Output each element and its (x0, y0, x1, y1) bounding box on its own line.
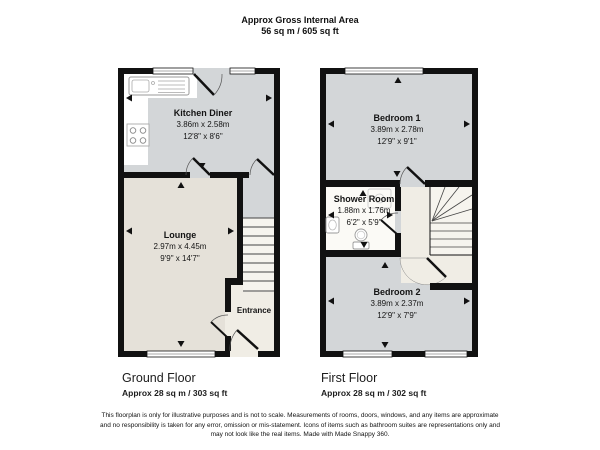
disclaimer-line-2: and no responsibility is taken for any e… (20, 421, 580, 431)
room-dim-metric: 2.97m x 4.45m (121, 241, 239, 253)
room-dim-metric: 3.89m x 2.78m (338, 124, 456, 136)
kitchen-window-right (230, 68, 255, 74)
page-header: Approx Gross Internal Area 56 sq m / 605… (0, 15, 600, 37)
room-dim-metric: 3.89m x 2.37m (338, 298, 456, 310)
room-name: Kitchen Diner (144, 107, 262, 119)
disclaimer-line-1: This floorplan is only for illustrative … (20, 411, 580, 421)
room-label-bedroom-1: Bedroom 1 3.89m x 2.78m 12'9" x 9'1" (338, 112, 456, 148)
room-dim-metric: 3.86m x 2.58m (144, 119, 262, 131)
room-label-entrance: Entrance (214, 306, 294, 315)
room-name: Bedroom 1 (338, 112, 456, 124)
room-dim-imperial: 6'2" x 5'9" (322, 217, 406, 229)
room-name: Shower Room (322, 193, 406, 205)
room-dim-imperial: 12'8" x 8'6" (144, 131, 262, 143)
lounge-floor-lower (124, 278, 225, 351)
bedroom2-window-right (425, 351, 467, 357)
bedroom1-window (345, 68, 423, 74)
disclaimer-line-3: may not look like the real items. Made w… (20, 430, 580, 440)
room-dim-imperial: 12'9" x 9'1" (338, 136, 456, 148)
room-label-bedroom-2: Bedroom 2 3.89m x 2.37m 12'9" x 7'9" (338, 286, 456, 322)
floor-name: First Floor (321, 371, 426, 385)
room-label-shower-room: Shower Room 1.88m x 1.76m 6'2" x 5'9" (322, 193, 406, 229)
lounge-window (147, 351, 215, 357)
room-label-lounge: Lounge 2.97m x 4.45m 9'9" x 14'7" (121, 229, 239, 265)
room-dim-imperial: 12'9" x 7'9" (338, 310, 456, 322)
floor-area: Approx 28 sq m / 302 sq ft (321, 388, 426, 398)
floor-area: Approx 28 sq m / 303 sq ft (122, 388, 227, 398)
first-floor-caption: First Floor Approx 28 sq m / 302 sq ft (321, 371, 426, 398)
room-name: Bedroom 2 (338, 286, 456, 298)
ground-floor-caption: Ground Floor Approx 28 sq m / 303 sq ft (122, 371, 227, 398)
disclaimer: This floorplan is only for illustrative … (20, 411, 580, 440)
floorplan-page: Approx Gross Internal Area 56 sq m / 605… (0, 0, 600, 450)
room-dim-metric: 1.88m x 1.76m (322, 205, 406, 217)
room-name: Lounge (121, 229, 239, 241)
room-label-kitchen-diner: Kitchen Diner 3.86m x 2.58m 12'8" x 8'6" (144, 107, 262, 143)
floor-name: Ground Floor (122, 371, 227, 385)
room-dim-imperial: 9'9" x 14'7" (121, 253, 239, 265)
bedroom2-window-left (343, 351, 392, 357)
kitchen-window-left (153, 68, 193, 74)
sink-icon (129, 77, 189, 95)
gross-internal-area-value: 56 sq m / 605 sq ft (0, 26, 600, 37)
gross-internal-area-title: Approx Gross Internal Area (0, 15, 600, 26)
